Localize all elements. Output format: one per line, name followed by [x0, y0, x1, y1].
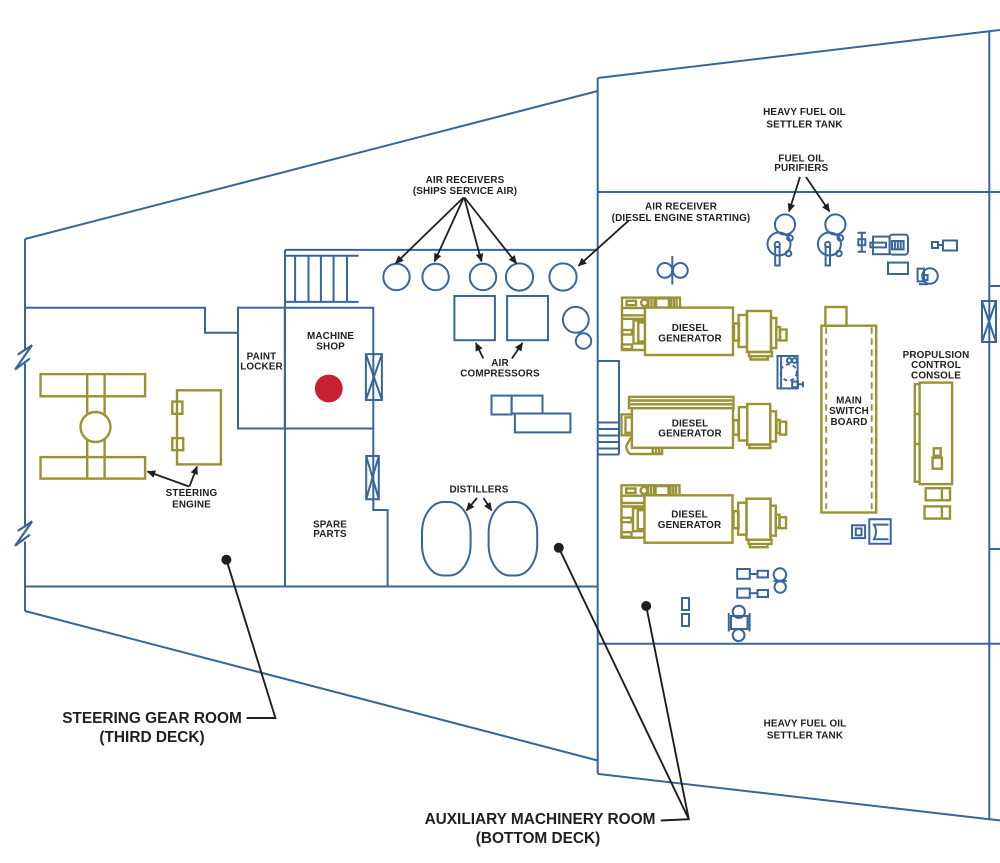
svg-text:(DIESEL ENGINE STARTING): (DIESEL ENGINE STARTING): [612, 213, 751, 224]
svg-text:AIR RECEIVERS: AIR RECEIVERS: [426, 175, 505, 186]
svg-text:PURIFIERS: PURIFIERS: [774, 163, 828, 174]
svg-text:(SHIPS SERVICE AIR): (SHIPS SERVICE AIR): [413, 186, 517, 197]
svg-text:BOARD: BOARD: [831, 417, 868, 428]
svg-text:ENGINE: ENGINE: [172, 500, 211, 511]
svg-text:SWITCH: SWITCH: [829, 406, 869, 417]
svg-text:SETTLER TANK: SETTLER TANK: [767, 731, 844, 742]
svg-text:MAIN: MAIN: [836, 396, 862, 407]
svg-text:COMPRESSORS: COMPRESSORS: [460, 369, 540, 380]
svg-text:AIR: AIR: [491, 358, 508, 369]
svg-text:AUXILIARY MACHINERY ROOM: AUXILIARY MACHINERY ROOM: [425, 811, 656, 828]
svg-text:STEERING GEAR ROOM: STEERING GEAR ROOM: [62, 710, 242, 727]
svg-text:GENERATOR: GENERATOR: [658, 429, 722, 440]
svg-text:SHOP: SHOP: [316, 341, 345, 352]
svg-text:(THIRD DECK): (THIRD DECK): [99, 729, 204, 746]
svg-text:HEAVY FUEL OIL: HEAVY FUEL OIL: [764, 719, 847, 730]
svg-text:HEAVY FUEL OIL: HEAVY FUEL OIL: [763, 107, 846, 118]
svg-text:(BOTTOM DECK): (BOTTOM DECK): [476, 830, 601, 847]
svg-text:CONSOLE: CONSOLE: [911, 370, 961, 381]
svg-text:STEERING: STEERING: [166, 488, 218, 499]
svg-text:LOCKER: LOCKER: [240, 361, 283, 372]
svg-text:GENERATOR: GENERATOR: [658, 520, 722, 531]
svg-text:GENERATOR: GENERATOR: [658, 333, 722, 344]
svg-text:DISTILLERS: DISTILLERS: [449, 485, 508, 496]
svg-text:AIR RECEIVER: AIR RECEIVER: [645, 202, 717, 213]
svg-text:SETTLER TANK: SETTLER TANK: [766, 119, 843, 130]
svg-text:PARTS: PARTS: [313, 529, 347, 540]
